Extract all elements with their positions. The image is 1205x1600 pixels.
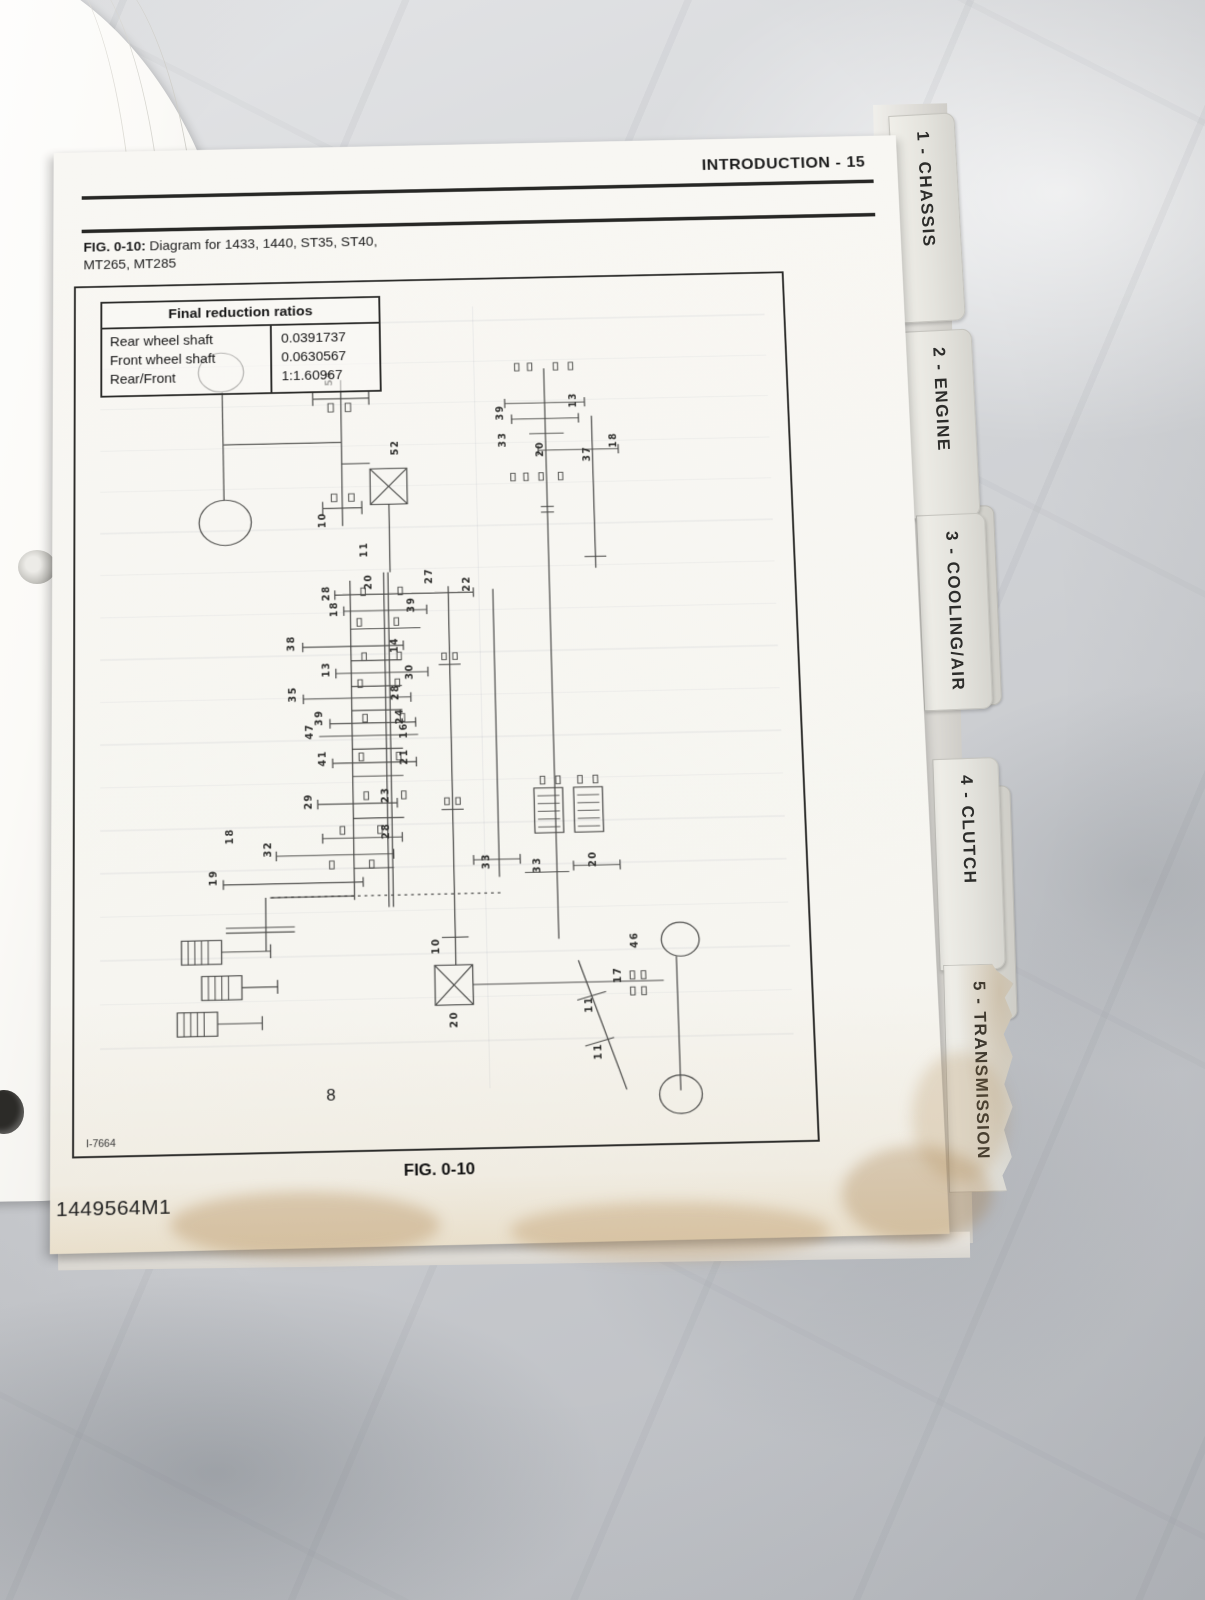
gear-label: 17	[611, 966, 624, 983]
gear-label: 23	[379, 787, 392, 804]
gear-label: 14	[388, 637, 401, 653]
gear-label: 13	[320, 661, 333, 677]
gear-label: 10	[429, 938, 442, 955]
table-row-value: 1:1.60967	[281, 366, 379, 387]
binder-hole	[18, 550, 56, 584]
gear-label: 22	[460, 575, 473, 591]
diagram-frame: 5452101128202722183938141330352839472416…	[72, 271, 820, 1158]
figure-caption-number: FIG. 0-10:	[83, 240, 145, 255]
tab-clutch[interactable]: 4 - CLUTCH	[932, 757, 1005, 971]
tab-label: 1 - CHASSIS	[911, 115, 938, 249]
tab-cooling-air[interactable]: 3 - COOLING/AIR	[916, 513, 993, 712]
gear-label: 28	[379, 823, 392, 840]
gear-label: 27	[422, 568, 435, 584]
gear-label: 33	[531, 856, 544, 873]
photo-of-manual-page: STEERING HYDRAULICS 1 - CHASSIS 2 - ENGI…	[0, 0, 1205, 1600]
gear-label: 13	[566, 392, 579, 408]
manual-page: INTRODUCTION - 15 FIG. 0-10: Diagram for…	[50, 135, 950, 1254]
gear-label: 18	[223, 828, 236, 845]
part-number: 1449564M1	[56, 1196, 171, 1222]
gear-label: 38	[284, 635, 297, 651]
table-row-value: 0.0391737	[281, 328, 379, 349]
gear-train-svg: 5452101128202722183938141330352839472416…	[74, 273, 818, 1156]
figure-label: FIG. 0-10	[404, 1159, 476, 1180]
table-row-label: Rear/Front	[110, 368, 270, 390]
gear-train-diagram: 5452101128202722183938141330352839472416…	[74, 273, 818, 1156]
gear-label: 18	[328, 601, 341, 617]
tab-label: 5 - TRANSMISSION	[968, 965, 993, 1160]
gear-label: 28	[389, 684, 402, 701]
gear-label: 11	[591, 1043, 604, 1060]
page-header: INTRODUCTION - 15	[701, 153, 865, 174]
gear-label: 20	[533, 441, 546, 457]
gear-label: 28	[320, 585, 333, 601]
tab-label: 2 - ENGINE	[927, 331, 953, 453]
gear-label: 16	[397, 722, 410, 739]
gear-label: 11	[582, 996, 595, 1013]
tab-engine[interactable]: 2 - ENGINE	[903, 328, 980, 519]
gear-label: 46	[628, 931, 641, 948]
gear-label: 30	[403, 663, 416, 679]
gear-label: 11	[357, 541, 370, 557]
gear-label: 10	[316, 512, 329, 528]
gear-label: 52	[388, 439, 401, 455]
gear-label: 20	[362, 574, 375, 590]
gear-label: 41	[316, 750, 329, 767]
gear-label: 21	[398, 748, 411, 765]
gear-label: 33	[480, 853, 493, 870]
diagram-page-number: 8	[326, 1086, 336, 1106]
gear-label: 47	[303, 723, 316, 740]
figure-caption: FIG. 0-10: Diagram for 1433, 1440, ST35,…	[83, 231, 536, 275]
tab-label: 4 - CLUTCH	[955, 759, 979, 885]
tab-label: 3 - COOLING/AIR	[940, 515, 967, 692]
header-rule	[82, 213, 876, 233]
table-row-value: 0.0630567	[281, 347, 379, 368]
gear-label: 18	[606, 432, 619, 448]
final-reduction-ratios-table: Final reduction ratios Rear wheel shaft …	[100, 296, 381, 398]
gear-label: 39	[493, 405, 506, 421]
gear-label: 37	[581, 446, 594, 462]
gear-label: 32	[261, 841, 274, 858]
gear-label: 20	[586, 850, 599, 867]
gear-label: 19	[207, 870, 220, 887]
figure-caption-text: Diagram for 1433, 1440, ST35, ST40,	[146, 235, 378, 254]
gear-label: 29	[302, 793, 315, 810]
gear-label: 20	[447, 1011, 460, 1028]
gear-label: 33	[496, 431, 509, 447]
diagram-reference-code: I-7664	[86, 1138, 116, 1150]
figure-caption-line2: MT265, MT285	[83, 256, 176, 272]
gear-label: 39	[405, 596, 418, 612]
gear-label: 35	[286, 686, 299, 703]
header-rule	[82, 179, 874, 199]
